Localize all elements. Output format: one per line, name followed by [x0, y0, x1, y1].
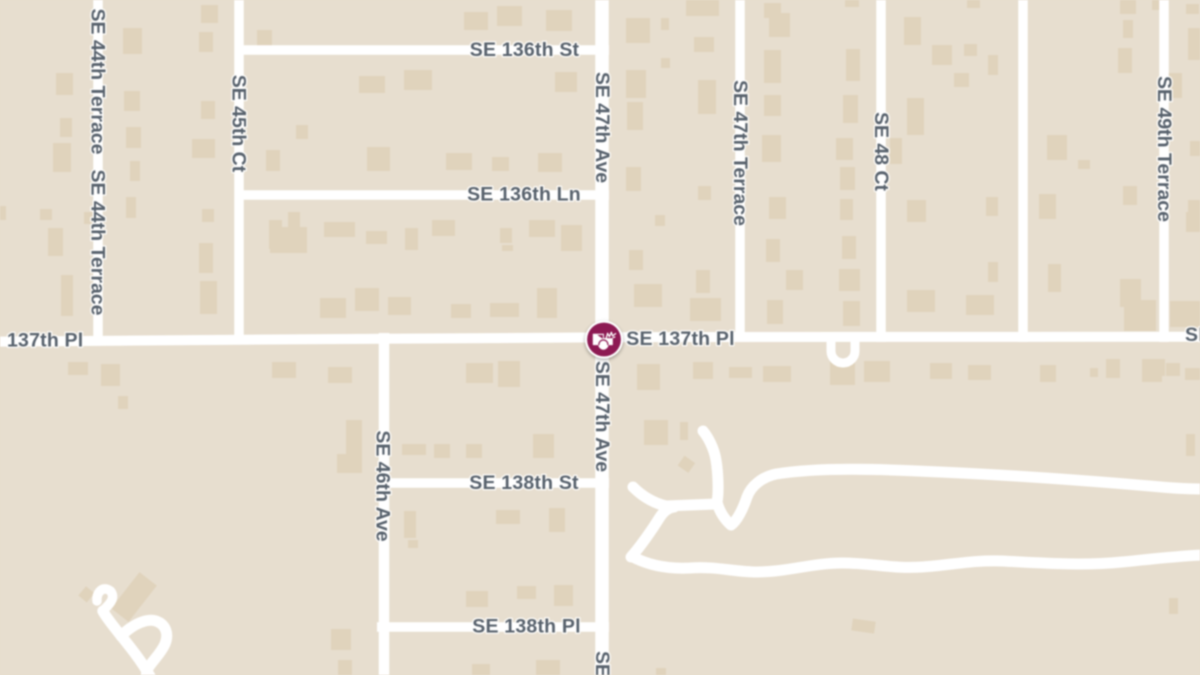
- svg-text:SE 47th Ave: SE 47th Ave: [591, 651, 613, 675]
- svg-text:SE 137th Pl: SE 137th Pl: [1185, 324, 1200, 346]
- svg-text:SE 138th St: SE 138th St: [469, 472, 579, 494]
- svg-text:SE 47th Ave: SE 47th Ave: [591, 72, 613, 183]
- svg-text:SE 138th Pl: SE 138th Pl: [472, 616, 580, 638]
- svg-text:SE 136th St: SE 136th St: [470, 39, 580, 61]
- svg-text:SE 136th Ln: SE 136th Ln: [467, 184, 581, 206]
- svg-text:SE 49th Terrace: SE 49th Terrace: [1153, 76, 1175, 222]
- svg-text:SE 47th Terrace: SE 47th Terrace: [729, 80, 751, 226]
- svg-text:SE 46th Ave: SE 46th Ave: [372, 430, 394, 541]
- svg-text:137th Pl: 137th Pl: [7, 330, 83, 352]
- svg-text:SE 45th Ct: SE 45th Ct: [228, 75, 250, 173]
- svg-text:SE 48 Ct: SE 48 Ct: [870, 112, 892, 192]
- svg-text:SE 44th Terrace: SE 44th Terrace: [87, 170, 109, 316]
- svg-text:SE 44th Terrace: SE 44th Terrace: [87, 9, 109, 155]
- svg-text:SE 137th Pl: SE 137th Pl: [626, 328, 734, 350]
- svg-text:SE 47th Ave: SE 47th Ave: [591, 361, 613, 472]
